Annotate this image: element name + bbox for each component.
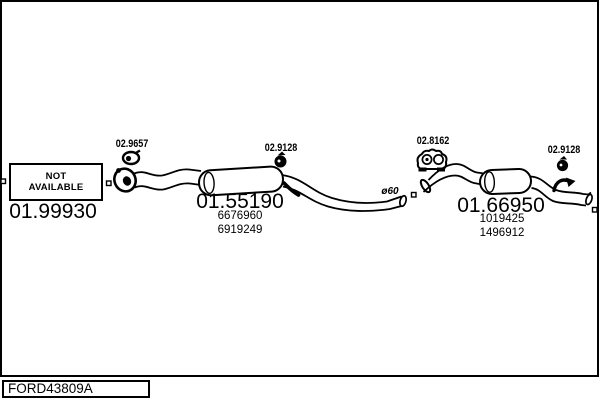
part-number-front-pipe[interactable]: 01.99930 xyxy=(1,201,105,222)
oem-number: 6919249 xyxy=(196,224,284,236)
oem-number: 1496912 xyxy=(458,227,546,239)
fitting-number-rear-hanger[interactable]: 02.8162 xyxy=(413,136,454,147)
pipe-diameter-label: ø60 xyxy=(377,187,403,197)
oem-number: 6676960 xyxy=(196,210,284,222)
oem-number: 1019425 xyxy=(458,213,546,225)
connector-marker xyxy=(412,193,417,198)
front-flange xyxy=(111,165,140,195)
rear-muffler-body xyxy=(480,169,532,195)
exhaust-diagram-page: NOT AVAILABLE 01.99930 01.55190 01.66950… xyxy=(0,0,600,400)
rear-clamp-arrow xyxy=(554,178,576,191)
fitting-number-rear-clamp[interactable]: 02.9128 xyxy=(544,145,585,156)
fitting-number-centre-clamp[interactable]: 02.9128 xyxy=(261,143,302,154)
drawing-code: FORD43809A xyxy=(8,381,93,396)
not-available-line1: NOT xyxy=(11,171,101,183)
drawing-code-box: FORD43809A xyxy=(2,380,150,398)
not-available-line2: AVAILABLE xyxy=(11,182,101,194)
not-available-box: NOT AVAILABLE xyxy=(9,163,103,201)
fitting-number-front-clamp[interactable]: 02.9657 xyxy=(112,139,153,150)
connector-marker xyxy=(107,181,112,186)
front-pipe xyxy=(134,169,201,189)
part-number-centre-muffler[interactable]: 01.55190 xyxy=(189,191,291,212)
connector-marker xyxy=(593,208,598,213)
connector-marker xyxy=(1,179,6,184)
front-clamp-icon xyxy=(123,151,140,165)
rear-clamp-icon xyxy=(557,156,568,171)
